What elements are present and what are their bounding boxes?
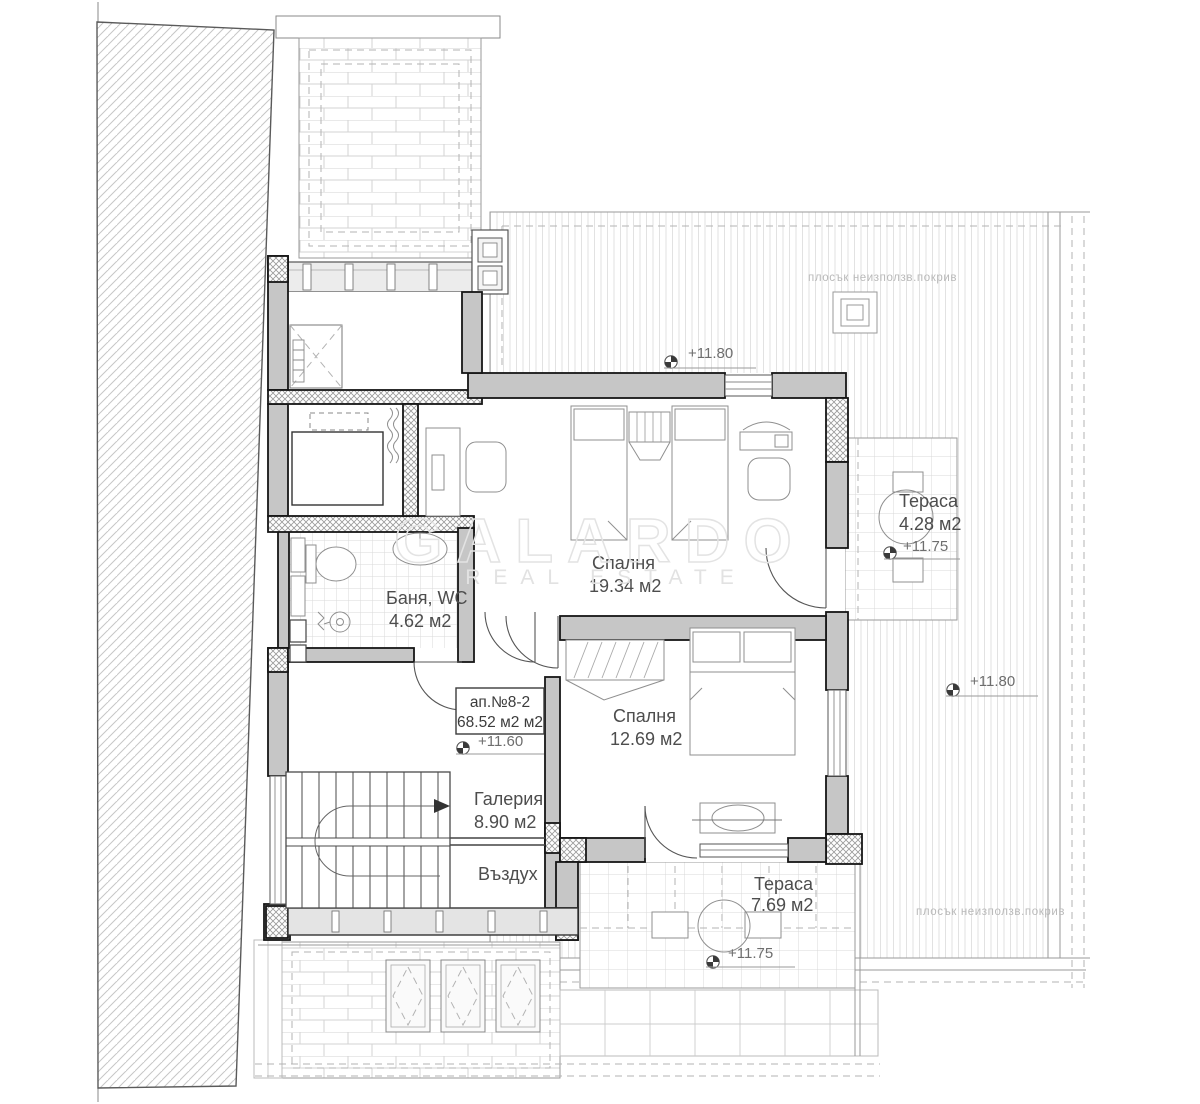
chimney (472, 230, 508, 294)
skylight (833, 292, 877, 333)
level-marker-apartment (457, 742, 469, 754)
toilet (306, 545, 356, 583)
floor-plan-page: плосък неизползв.покрив плосък неизползв… (0, 0, 1200, 1104)
shaft (290, 325, 342, 388)
label-gallery-area: 8.90 м2 (474, 812, 536, 832)
roof-note-bottom: плосък неизползв.покрив (916, 906, 1065, 918)
window-top-wall (725, 375, 772, 396)
top-roof-block (276, 16, 508, 294)
level-marker-roof-top (665, 356, 677, 368)
roof-level-top: +11.80 (688, 345, 733, 362)
bed-double (690, 628, 795, 755)
roof-level-right: +11.80 (970, 673, 1015, 690)
label-bedroom-bottom-area: 12.69 м2 (610, 729, 682, 749)
terrace-south-level: +11.75 (728, 945, 773, 962)
apartment-level: +11.60 (478, 733, 523, 750)
level-marker-terrace-east (884, 547, 896, 559)
apartment-total-area: 68.52 м2 м2 (457, 714, 543, 731)
label-gallery-name: Галерия (474, 789, 543, 809)
roof-note-top: плосък неизползв.покрив (808, 272, 957, 284)
dresser (692, 803, 782, 833)
level-marker-roof-right (947, 684, 959, 696)
label-terrace-south-name: Тераса (754, 874, 814, 894)
staircase (286, 772, 450, 908)
terrace-east-level: +11.75 (903, 538, 948, 555)
label-terrace-south-area: 7.69 м2 (751, 895, 813, 915)
label-bathroom-area: 4.62 м2 (389, 611, 451, 631)
window-bottom-wall (700, 844, 788, 857)
roof-window (386, 960, 430, 1032)
window-right-wall (828, 690, 846, 776)
floor-plan-drawing: плосък неизползв.покрив плосък неизползв… (0, 0, 1200, 1104)
watermark-tagline: REAL ESTATE (465, 566, 746, 589)
level-marker-terrace-south (707, 956, 719, 968)
roof-window (496, 960, 540, 1032)
apartment-number: ап.№8-2 (470, 694, 530, 711)
label-bathroom-name: Баня, WC (386, 588, 468, 608)
bottom-roof-block (254, 940, 560, 1078)
terrace-south: Тераса 7.69 м2 +11.75 (580, 862, 855, 988)
label-terrace-east-name: Тераса (899, 491, 959, 511)
roof-window (441, 960, 485, 1032)
terrace-east: Тераса 4.28 м2 +11.75 (845, 438, 961, 620)
label-air-void: Въздух (478, 864, 538, 884)
window-stairwell (270, 776, 286, 904)
label-terrace-east-area: 4.28 м2 (899, 514, 961, 534)
label-bedroom-bottom-name: Спалня (613, 706, 676, 726)
